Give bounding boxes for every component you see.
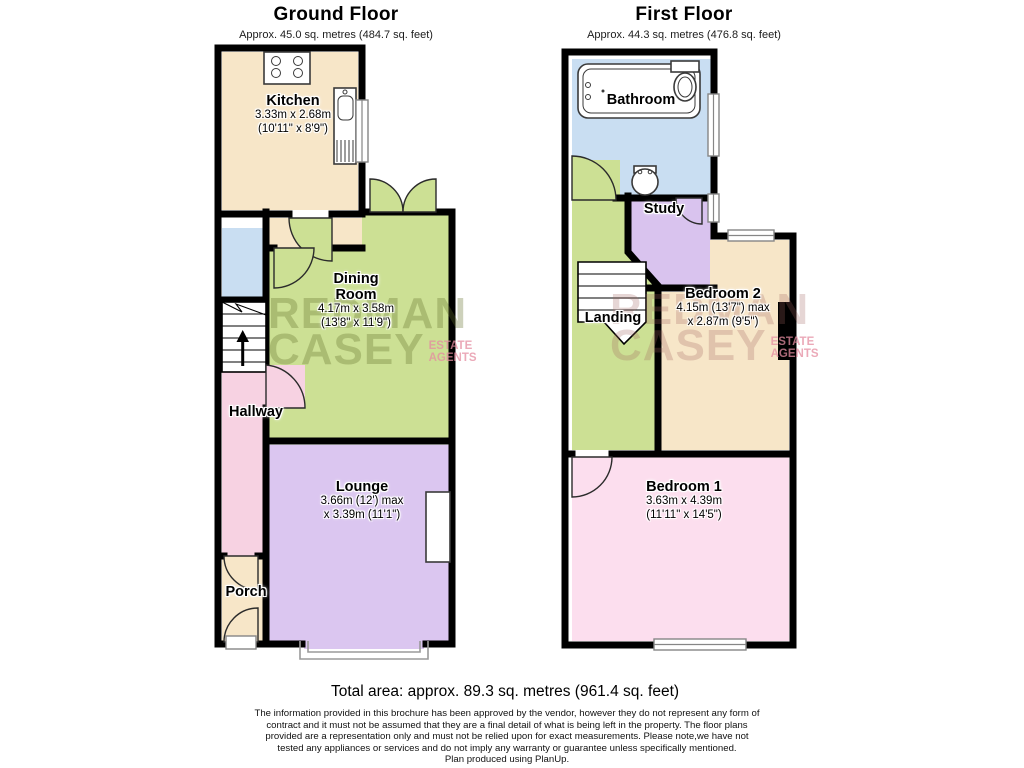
disclaimer-text: The information provided in this brochur… [254,708,759,766]
study-label: Study [644,201,684,217]
french-door-left-arc [370,179,403,212]
dining-room-label: Dining Room 4.17m x 3.58m (13'8" x 11'9"… [318,271,394,330]
first-floor-plan [558,44,810,659]
disclaimer-line: Plan produced using PlanUp. [254,754,759,766]
bathroom-label: Bathroom [607,92,675,108]
bay-window-floor [304,637,424,649]
lounge-shape [266,445,452,641]
bedroom1-label: Bedroom 1 3.63m x 4.39m (11'11" x 14'5") [646,479,722,522]
disclaimer-line: tested any appliances or services and do… [254,743,759,755]
total-area-text: Total area: approx. 89.3 sq. metres (961… [331,683,679,701]
ground-floor-plan [214,44,462,666]
hob-unit [264,52,310,84]
ground-floor-title: Ground Floor [239,4,433,26]
porch-label: Porch [225,584,266,600]
first-floor-title: First Floor [587,4,781,26]
disclaimer-line: The information provided in this brochur… [254,708,759,720]
bath-plug-icon [602,90,605,93]
first-floor-header: First Floor Approx. 44.3 sq. metres (476… [587,4,781,41]
floorplan-brochure-page: Ground Floor Approx. 45.0 sq. metres (48… [0,0,1024,768]
basin-icon [632,169,658,195]
disclaimer-line: provided are a representation only and m… [254,731,759,743]
hallway-shape [222,372,266,556]
fireplace [426,492,450,562]
landing-label: Landing [585,310,641,326]
ground-floor-header: Ground Floor Approx. 45.0 sq. metres (48… [239,4,433,41]
french-door-right-arc [403,179,436,212]
lounge-label: Lounge 3.66m (12') max x 3.39m (11'1") [321,479,404,522]
front-door [226,636,256,649]
toilet-cistern [671,61,699,72]
bedroom2-label: Bedroom 2 4.15m (13'7") max x 2.87m (9'5… [676,286,769,329]
disclaimer-line: contract and it must not be assumed that… [254,720,759,732]
first-floor-subtitle: Approx. 44.3 sq. metres (476.8 sq. feet) [587,29,781,41]
hallway-label: Hallway [229,404,283,420]
understairs-cupboard [222,228,266,300]
ground-floor-subtitle: Approx. 45.0 sq. metres (484.7 sq. feet) [239,29,433,41]
kitchen-label: Kitchen 3.33m x 2.68m (10'11" x 8'9") [255,93,331,136]
